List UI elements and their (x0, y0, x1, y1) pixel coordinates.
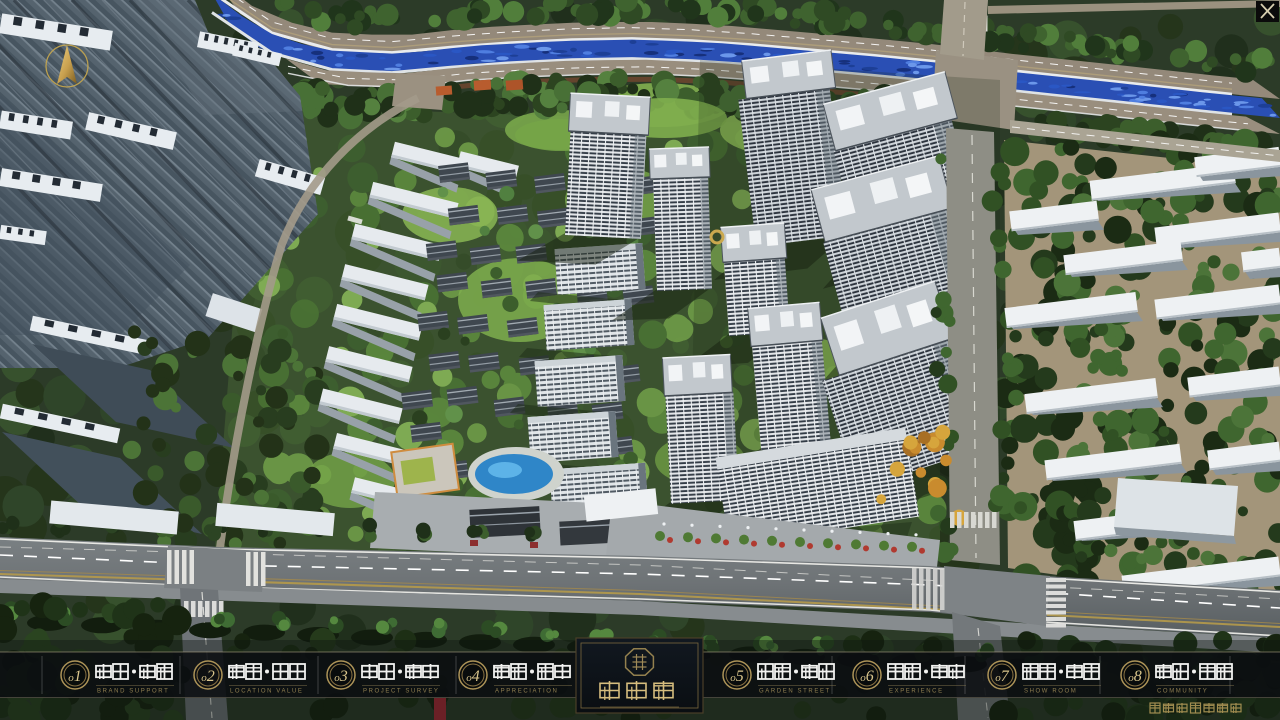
svg-text:LOCATION VALUE: LOCATION VALUE (230, 689, 304, 695)
svg-text:COMMUNITY: COMMUNITY (1157, 689, 1208, 695)
svg-text:SHOW ROOM: SHOW ROOM (1024, 689, 1077, 695)
svg-text:GARDEN STREET: GARDEN STREET (759, 689, 831, 695)
svg-text:APPRECIATION: APPRECIATION (495, 689, 558, 695)
svg-text:PROJECT SURVEY: PROJECT SURVEY (363, 689, 440, 695)
svg-text:EXPERIENCE: EXPERIENCE (889, 689, 944, 695)
svg-text:BRAND SUPPORT: BRAND SUPPORT (97, 689, 169, 695)
